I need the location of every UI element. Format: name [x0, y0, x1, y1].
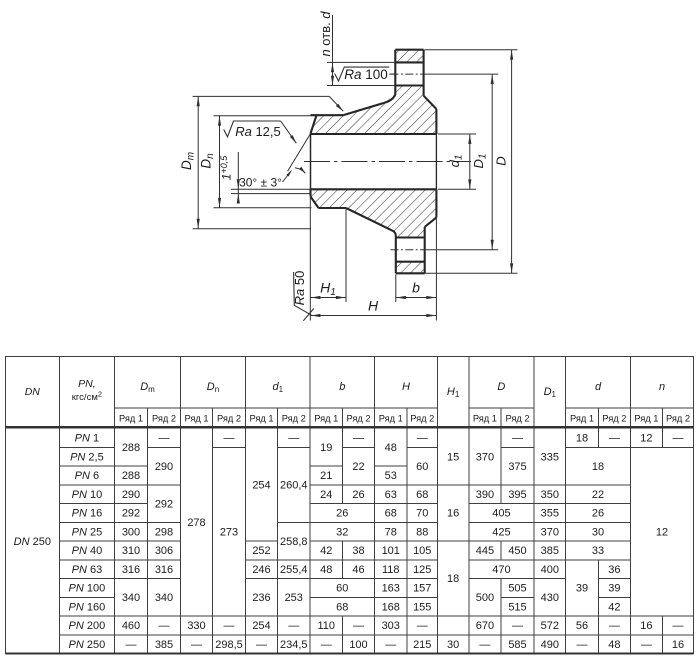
- svg-text:254: 254: [252, 480, 270, 492]
- svg-text:585: 585: [508, 639, 526, 651]
- svg-text:505: 505: [508, 583, 526, 595]
- svg-text:370: 370: [476, 451, 494, 463]
- svg-text:470: 470: [492, 564, 510, 576]
- svg-text:Ряд 2: Ряд 2: [282, 414, 306, 424]
- svg-text:21: 21: [320, 470, 332, 482]
- svg-text:15: 15: [447, 451, 459, 463]
- svg-text:38: 38: [352, 545, 364, 557]
- svg-text:500: 500: [476, 592, 494, 604]
- svg-text:PN 200: PN 200: [69, 620, 106, 632]
- svg-text:DN 250: DN 250: [14, 536, 51, 548]
- svg-text:—: —: [288, 433, 299, 445]
- svg-text:b: b: [339, 381, 345, 393]
- svg-text:48: 48: [320, 564, 332, 576]
- svg-text:12: 12: [656, 526, 668, 538]
- svg-text:—: —: [353, 620, 364, 632]
- svg-text:290: 290: [122, 489, 140, 501]
- svg-text:19: 19: [320, 442, 332, 454]
- svg-text:PN 16: PN 16: [72, 508, 103, 520]
- svg-text:Dm: Dm: [140, 381, 155, 394]
- svg-text:340: 340: [155, 592, 173, 604]
- svg-text:Ряд 1: Ряд 1: [119, 414, 143, 424]
- svg-text:1+0,5: 1+0,5: [219, 155, 234, 180]
- svg-text:PN 6: PN 6: [75, 470, 99, 482]
- svg-text:48: 48: [385, 442, 397, 454]
- svg-text:310: 310: [122, 545, 140, 557]
- svg-text:Ряд 1: Ряд 1: [184, 414, 208, 424]
- svg-text:105: 105: [413, 545, 431, 557]
- svg-text:375: 375: [508, 461, 526, 473]
- svg-text:Ряд 1: Ряд 1: [473, 414, 497, 424]
- svg-text:48: 48: [608, 639, 620, 651]
- svg-text:24: 24: [320, 489, 332, 501]
- svg-text:56: 56: [576, 620, 588, 632]
- svg-text:78: 78: [385, 526, 397, 538]
- svg-text:—: —: [417, 433, 428, 445]
- svg-text:—: —: [353, 433, 364, 445]
- svg-text:d: d: [595, 381, 602, 393]
- svg-text:405: 405: [492, 508, 510, 520]
- svg-text:PN 160: PN 160: [69, 601, 106, 613]
- svg-text:D1: D1: [471, 154, 489, 169]
- svg-text:—: —: [256, 639, 267, 651]
- svg-text:Ряд 1: Ряд 1: [634, 414, 658, 424]
- svg-text:H: H: [368, 298, 379, 314]
- svg-text:258,8: 258,8: [280, 536, 308, 548]
- svg-text:252: 252: [252, 545, 270, 557]
- svg-text:26: 26: [352, 489, 364, 501]
- svg-text:236: 236: [252, 592, 270, 604]
- svg-text:290: 290: [155, 461, 173, 473]
- svg-text:33: 33: [592, 545, 604, 557]
- svg-text:18: 18: [592, 461, 604, 473]
- svg-text:60: 60: [416, 461, 428, 473]
- svg-text:Ra 100: Ra 100: [344, 67, 388, 82]
- svg-text:163: 163: [382, 583, 400, 595]
- svg-text:—: —: [479, 639, 490, 651]
- svg-text:—: —: [512, 620, 523, 632]
- svg-text:298,5: 298,5: [215, 639, 243, 651]
- svg-text:Ряд 1: Ряд 1: [379, 414, 403, 424]
- svg-text:68: 68: [385, 508, 397, 520]
- svg-text:PN 10: PN 10: [72, 489, 103, 501]
- svg-text:42: 42: [608, 601, 620, 613]
- svg-text:39: 39: [608, 583, 620, 595]
- svg-text:16: 16: [672, 639, 684, 651]
- svg-text:b: b: [412, 280, 420, 296]
- svg-text:110: 110: [317, 620, 335, 632]
- svg-text:273: 273: [220, 526, 238, 538]
- svg-text:36: 36: [608, 564, 620, 576]
- svg-text:278: 278: [187, 517, 205, 529]
- svg-text:430: 430: [541, 592, 559, 604]
- svg-text:—: —: [577, 639, 588, 651]
- svg-text:515: 515: [508, 601, 526, 613]
- svg-text:—: —: [288, 620, 299, 632]
- svg-text:16: 16: [447, 508, 459, 520]
- svg-text:Ряд 2: Ряд 2: [346, 414, 370, 424]
- svg-text:—: —: [609, 620, 620, 632]
- svg-text:n: n: [659, 381, 665, 393]
- svg-text:255,4: 255,4: [280, 564, 308, 576]
- svg-text:—: —: [641, 639, 652, 651]
- svg-text:316: 316: [122, 564, 140, 576]
- svg-text:PN 2,5: PN 2,5: [70, 451, 104, 463]
- svg-text:PN 40: PN 40: [72, 545, 103, 557]
- svg-text:—: —: [224, 620, 235, 632]
- svg-text:292: 292: [155, 498, 173, 510]
- svg-text:n отв. d: n отв. d: [318, 11, 333, 57]
- svg-text:H1: H1: [320, 280, 336, 299]
- svg-text:253: 253: [285, 592, 303, 604]
- svg-text:260,4: 260,4: [280, 480, 308, 492]
- svg-text:Ra 12,5: Ra 12,5: [235, 124, 281, 139]
- svg-text:Dn: Dn: [207, 381, 219, 394]
- svg-text:PN 250: PN 250: [69, 639, 106, 651]
- svg-text:425: 425: [492, 526, 510, 538]
- svg-text:300: 300: [122, 526, 140, 538]
- svg-text:H: H: [402, 381, 410, 393]
- svg-text:26: 26: [592, 508, 604, 520]
- svg-text:—: —: [385, 639, 396, 651]
- svg-text:460: 460: [122, 620, 140, 632]
- svg-text:450: 450: [508, 545, 526, 557]
- svg-text:53: 53: [385, 470, 397, 482]
- svg-text:70: 70: [416, 508, 428, 520]
- svg-text:Ряд 2: Ряд 2: [410, 414, 434, 424]
- svg-text:303: 303: [382, 620, 400, 632]
- svg-text:—: —: [126, 639, 137, 651]
- svg-text:100: 100: [349, 639, 367, 651]
- svg-text:42: 42: [320, 545, 332, 557]
- svg-text:46: 46: [352, 564, 364, 576]
- svg-text:340: 340: [122, 592, 140, 604]
- svg-text:32: 32: [336, 526, 348, 538]
- svg-text:572: 572: [541, 620, 559, 632]
- svg-text:118: 118: [382, 564, 400, 576]
- svg-text:—: —: [159, 620, 170, 632]
- svg-text:PN,: PN,: [78, 378, 96, 390]
- svg-text:234,5: 234,5: [280, 639, 308, 651]
- svg-text:—: —: [321, 639, 332, 651]
- svg-text:30: 30: [447, 639, 459, 651]
- svg-text:—: —: [609, 433, 620, 445]
- svg-text:400: 400: [541, 564, 559, 576]
- svg-text:Ряд 2: Ряд 2: [666, 414, 690, 424]
- svg-text:350: 350: [541, 489, 559, 501]
- svg-text:Ряд 1: Ряд 1: [314, 414, 338, 424]
- svg-text:—: —: [673, 433, 684, 445]
- svg-text:Dm: Dm: [179, 152, 197, 170]
- svg-text:22: 22: [352, 461, 364, 473]
- svg-text:—: —: [191, 639, 202, 651]
- svg-text:H1: H1: [447, 386, 460, 399]
- svg-text:330: 330: [187, 620, 205, 632]
- svg-text:—: —: [224, 433, 235, 445]
- svg-text:39: 39: [576, 583, 588, 595]
- svg-text:—: —: [417, 620, 428, 632]
- svg-text:125: 125: [413, 564, 431, 576]
- svg-text:Ряд 1: Ряд 1: [249, 414, 273, 424]
- svg-text:DN: DN: [25, 386, 41, 398]
- svg-text:670: 670: [476, 620, 494, 632]
- svg-text:385: 385: [541, 545, 559, 557]
- svg-text:246: 246: [252, 564, 270, 576]
- svg-text:490: 490: [541, 639, 559, 651]
- svg-text:—: —: [673, 620, 684, 632]
- svg-text:63: 63: [385, 489, 397, 501]
- svg-text:30° ± 3°: 30° ± 3°: [239, 175, 282, 189]
- svg-text:254: 254: [252, 620, 270, 632]
- svg-text:D1: D1: [544, 386, 557, 399]
- svg-text:168: 168: [382, 601, 400, 613]
- svg-text:18: 18: [447, 573, 459, 585]
- svg-text:316: 316: [155, 564, 173, 576]
- svg-text:Ряд 2: Ряд 2: [217, 414, 241, 424]
- svg-text:Ряд 2: Ряд 2: [505, 414, 529, 424]
- svg-text:88: 88: [416, 526, 428, 538]
- svg-text:155: 155: [413, 601, 431, 613]
- svg-text:288: 288: [122, 442, 140, 454]
- svg-text:Ряд 1: Ряд 1: [570, 414, 594, 424]
- svg-text:306: 306: [155, 545, 173, 557]
- svg-text:68: 68: [336, 601, 348, 613]
- svg-text:101: 101: [382, 545, 400, 557]
- svg-text:30: 30: [592, 526, 604, 538]
- svg-text:Ряд 2: Ряд 2: [602, 414, 626, 424]
- svg-text:68: 68: [416, 489, 428, 501]
- svg-text:PN 100: PN 100: [69, 583, 106, 595]
- svg-text:385: 385: [155, 639, 173, 651]
- svg-text:390: 390: [476, 489, 494, 501]
- svg-text:335: 335: [541, 451, 559, 463]
- svg-text:445: 445: [476, 545, 494, 557]
- svg-text:d1: d1: [273, 381, 284, 394]
- svg-text:16: 16: [640, 620, 652, 632]
- svg-text:PN 1: PN 1: [75, 433, 99, 445]
- svg-text:PN 63: PN 63: [72, 564, 103, 576]
- svg-text:—: —: [512, 433, 523, 445]
- svg-text:355: 355: [541, 508, 559, 520]
- svg-text:Dn: Dn: [199, 153, 217, 169]
- svg-text:26: 26: [336, 508, 348, 520]
- svg-text:370: 370: [541, 526, 559, 538]
- svg-text:Ra 50: Ra 50: [292, 271, 307, 306]
- svg-text:395: 395: [508, 489, 526, 501]
- svg-text:288: 288: [122, 470, 140, 482]
- svg-text:292: 292: [122, 508, 140, 520]
- svg-text:Ряд 2: Ряд 2: [152, 414, 176, 424]
- svg-text:18: 18: [576, 433, 588, 445]
- svg-text:d1: d1: [447, 155, 465, 168]
- svg-text:298: 298: [155, 526, 173, 538]
- svg-text:157: 157: [413, 583, 431, 595]
- svg-text:PN 25: PN 25: [72, 526, 103, 538]
- svg-text:кгс/см2: кгс/см2: [72, 390, 102, 404]
- svg-text:60: 60: [336, 583, 348, 595]
- svg-text:215: 215: [413, 639, 431, 651]
- svg-text:D: D: [497, 381, 505, 393]
- svg-text:D: D: [494, 156, 509, 165]
- svg-text:22: 22: [592, 489, 604, 501]
- svg-text:12: 12: [640, 433, 652, 445]
- svg-text:—: —: [159, 433, 170, 445]
